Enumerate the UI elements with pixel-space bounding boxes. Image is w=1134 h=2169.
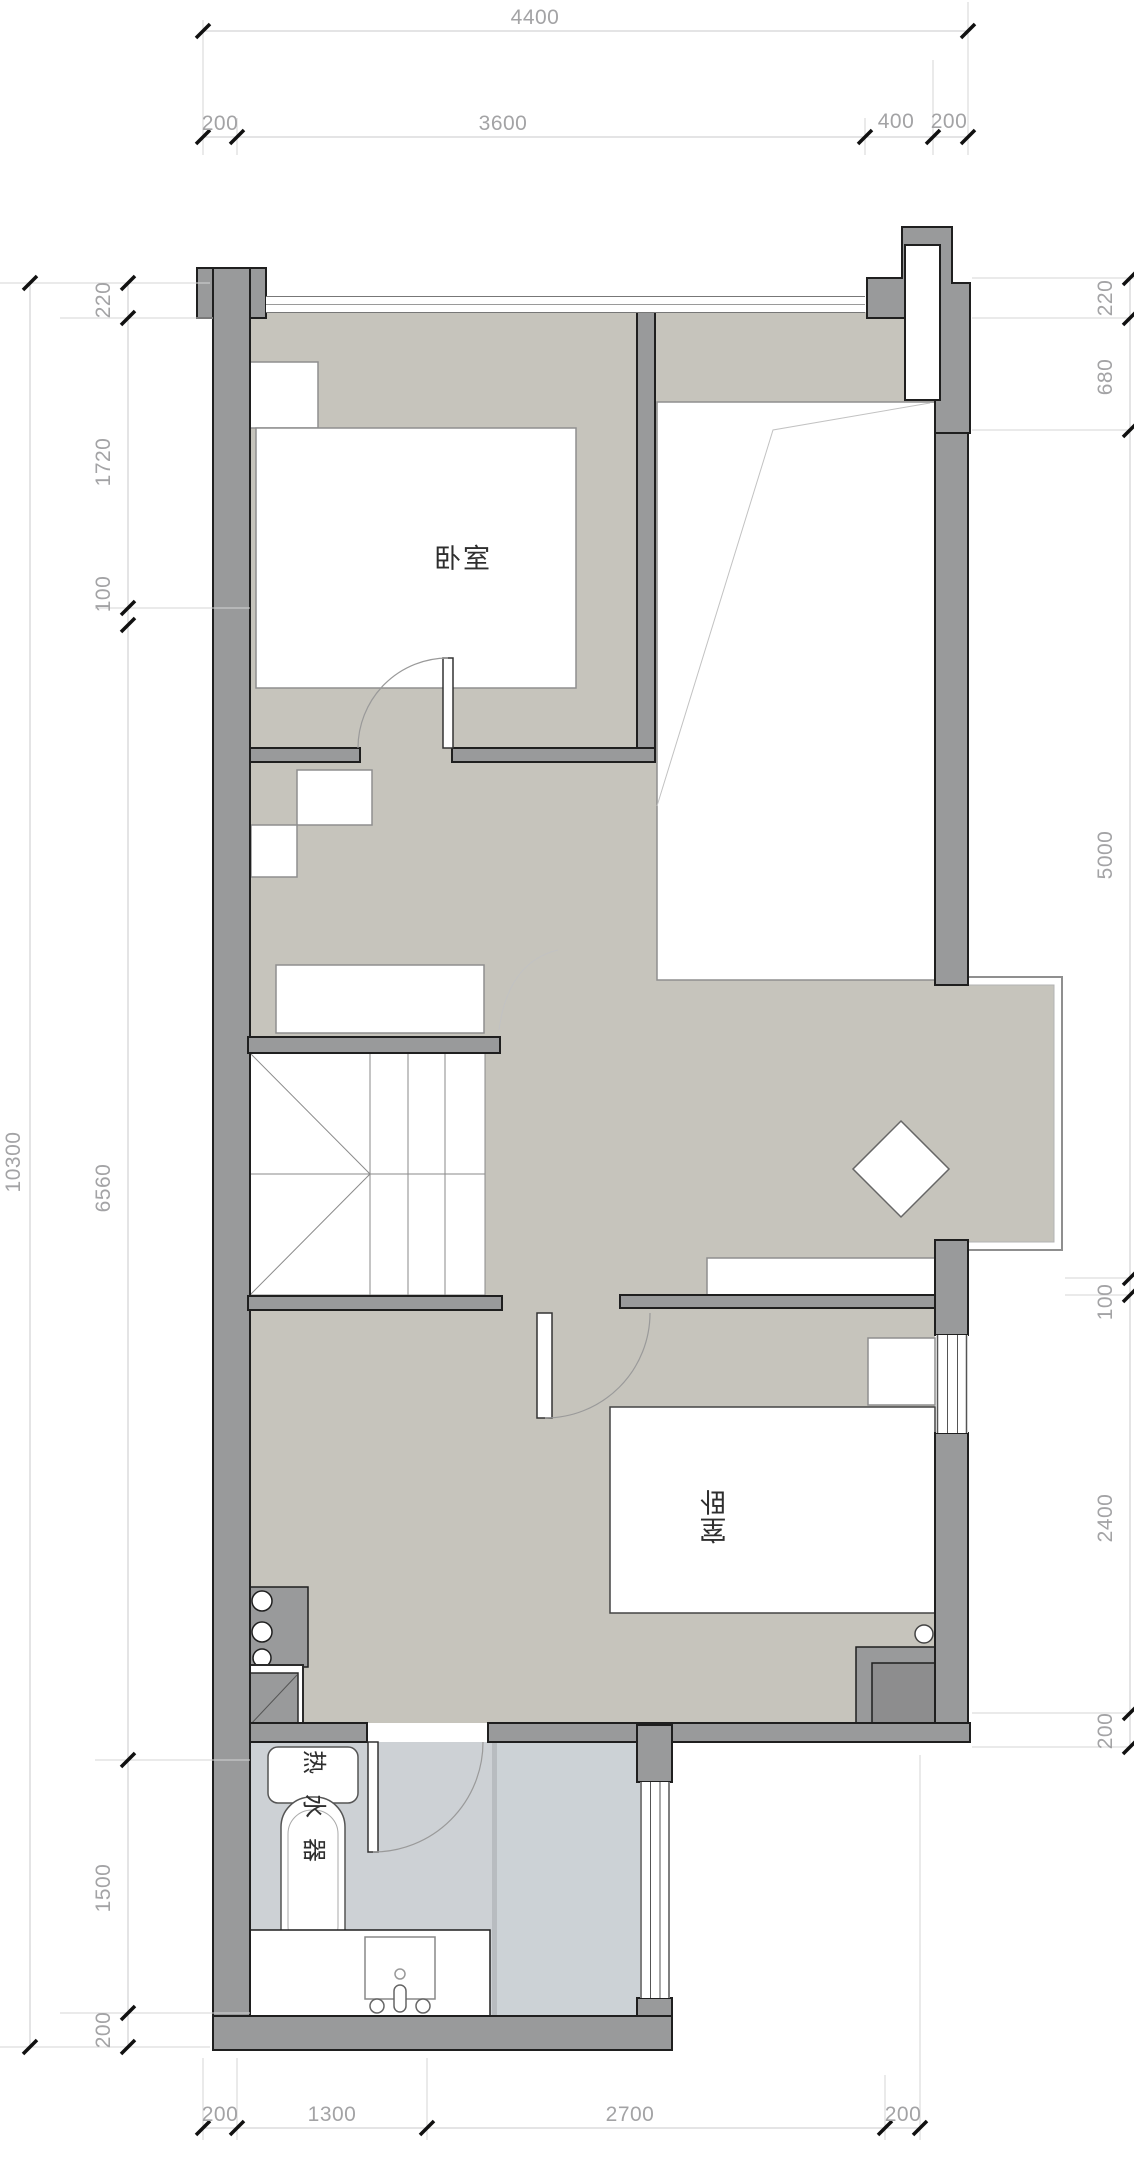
faucet-knob (416, 1999, 430, 2013)
floor-plan-page: 卧室 卧 室 热 水 器 (0, 0, 1134, 2169)
dim-bottom-seg-3: 200 (885, 2103, 922, 2126)
wall-bedroom-top-left (250, 748, 360, 762)
wall-right-mid (935, 1240, 968, 1335)
window-top (266, 296, 865, 313)
shower-partition (492, 1742, 497, 2016)
dim-left-seg-5: 200 (92, 2012, 115, 2049)
staircase (250, 1053, 485, 1295)
bedroom-bottom-label-char2: 室 (698, 1514, 727, 1544)
sink-faucet (394, 1985, 406, 2012)
wall-stair-lower (248, 1296, 502, 1310)
dim-bottom-seg-2: 2700 (606, 2103, 655, 2126)
round-stool (915, 1625, 933, 1643)
bed-top (256, 428, 576, 688)
dim-top-seg-1: 3600 (479, 112, 528, 135)
dim-top-total: 4400 (511, 6, 560, 29)
bed-platform-right (657, 402, 935, 980)
door-leaf-bathroom (368, 1742, 378, 1852)
wall-bottom (213, 2016, 672, 2050)
dim-right-seg-5: 200 (1094, 1713, 1117, 1750)
dim-bottom-seg-1: 1300 (308, 2103, 357, 2126)
water-heater-label-char3: 器 (300, 1838, 327, 1862)
wall-bedroom-top-right (452, 748, 655, 762)
dim-top-seg-3: 200 (931, 110, 968, 133)
wall-stair-upper (248, 1037, 500, 1053)
dim-right-seg-1: 680 (1094, 359, 1117, 396)
hall-stool (251, 825, 297, 877)
dim-bottom-seg-0: 200 (202, 2103, 239, 2126)
wall-right-lower (935, 1433, 968, 1725)
closet-niche (905, 245, 940, 400)
nightstand-top-left (250, 362, 318, 428)
wall-bathroom-top (250, 1723, 367, 1742)
dim-right-seg-0: 220 (1094, 280, 1117, 317)
water-heater-label-char2: 水 (300, 1794, 327, 1818)
bed-bottom (610, 1407, 935, 1613)
wall-corner-column-upper (637, 1725, 672, 1782)
door-leaf-bedroom-top (443, 658, 453, 748)
wall-center-vertical (637, 312, 655, 758)
dim-top-seg-2: 400 (878, 110, 915, 133)
bedroom-bottom-label-char1: 卧 (698, 1486, 727, 1516)
wall-bottom-right-section (488, 1723, 970, 1742)
dim-left-seg-1: 1720 (92, 438, 115, 487)
hall-desk (297, 770, 372, 825)
water-heater-label-char1: 热 (300, 1750, 327, 1774)
window-bottom-right (640, 1782, 670, 1998)
window-right-bedroom (936, 1335, 968, 1433)
wall-bedroom-bottom-top (620, 1295, 937, 1308)
floor-bay-window (935, 985, 1054, 1242)
door-leaf-bedroom-bottom (537, 1313, 552, 1418)
wall-right-upper (935, 433, 968, 985)
corridor-sideboard (707, 1258, 937, 1296)
floor-shower (497, 1742, 640, 2016)
shoe-cabinet (276, 965, 484, 1033)
burner-icon (252, 1591, 272, 1611)
dim-right-seg-4: 2400 (1094, 1494, 1117, 1543)
dim-left-seg-4: 1500 (92, 1864, 115, 1913)
dim-left-total: 10300 (2, 1132, 25, 1193)
dim-left-seg-0: 220 (92, 282, 115, 319)
dim-right-seg-3: 100 (1094, 1284, 1117, 1321)
dim-top-seg-0: 200 (202, 112, 239, 135)
burner-icon (252, 1622, 272, 1642)
nightstand-bottom-right (868, 1338, 935, 1405)
floor-plan-drawing: 卧室 卧 室 热 水 器 (0, 0, 1134, 2169)
ac-cabinet-inner (872, 1663, 935, 1723)
wall-left (213, 268, 250, 2048)
bedroom-top-label: 卧室 (434, 544, 492, 574)
dim-left-seg-3: 6560 (92, 1164, 115, 1213)
faucet-knob (370, 1999, 384, 2013)
dim-left-seg-2: 100 (92, 576, 115, 613)
dim-right-seg-2: 5000 (1094, 831, 1117, 880)
